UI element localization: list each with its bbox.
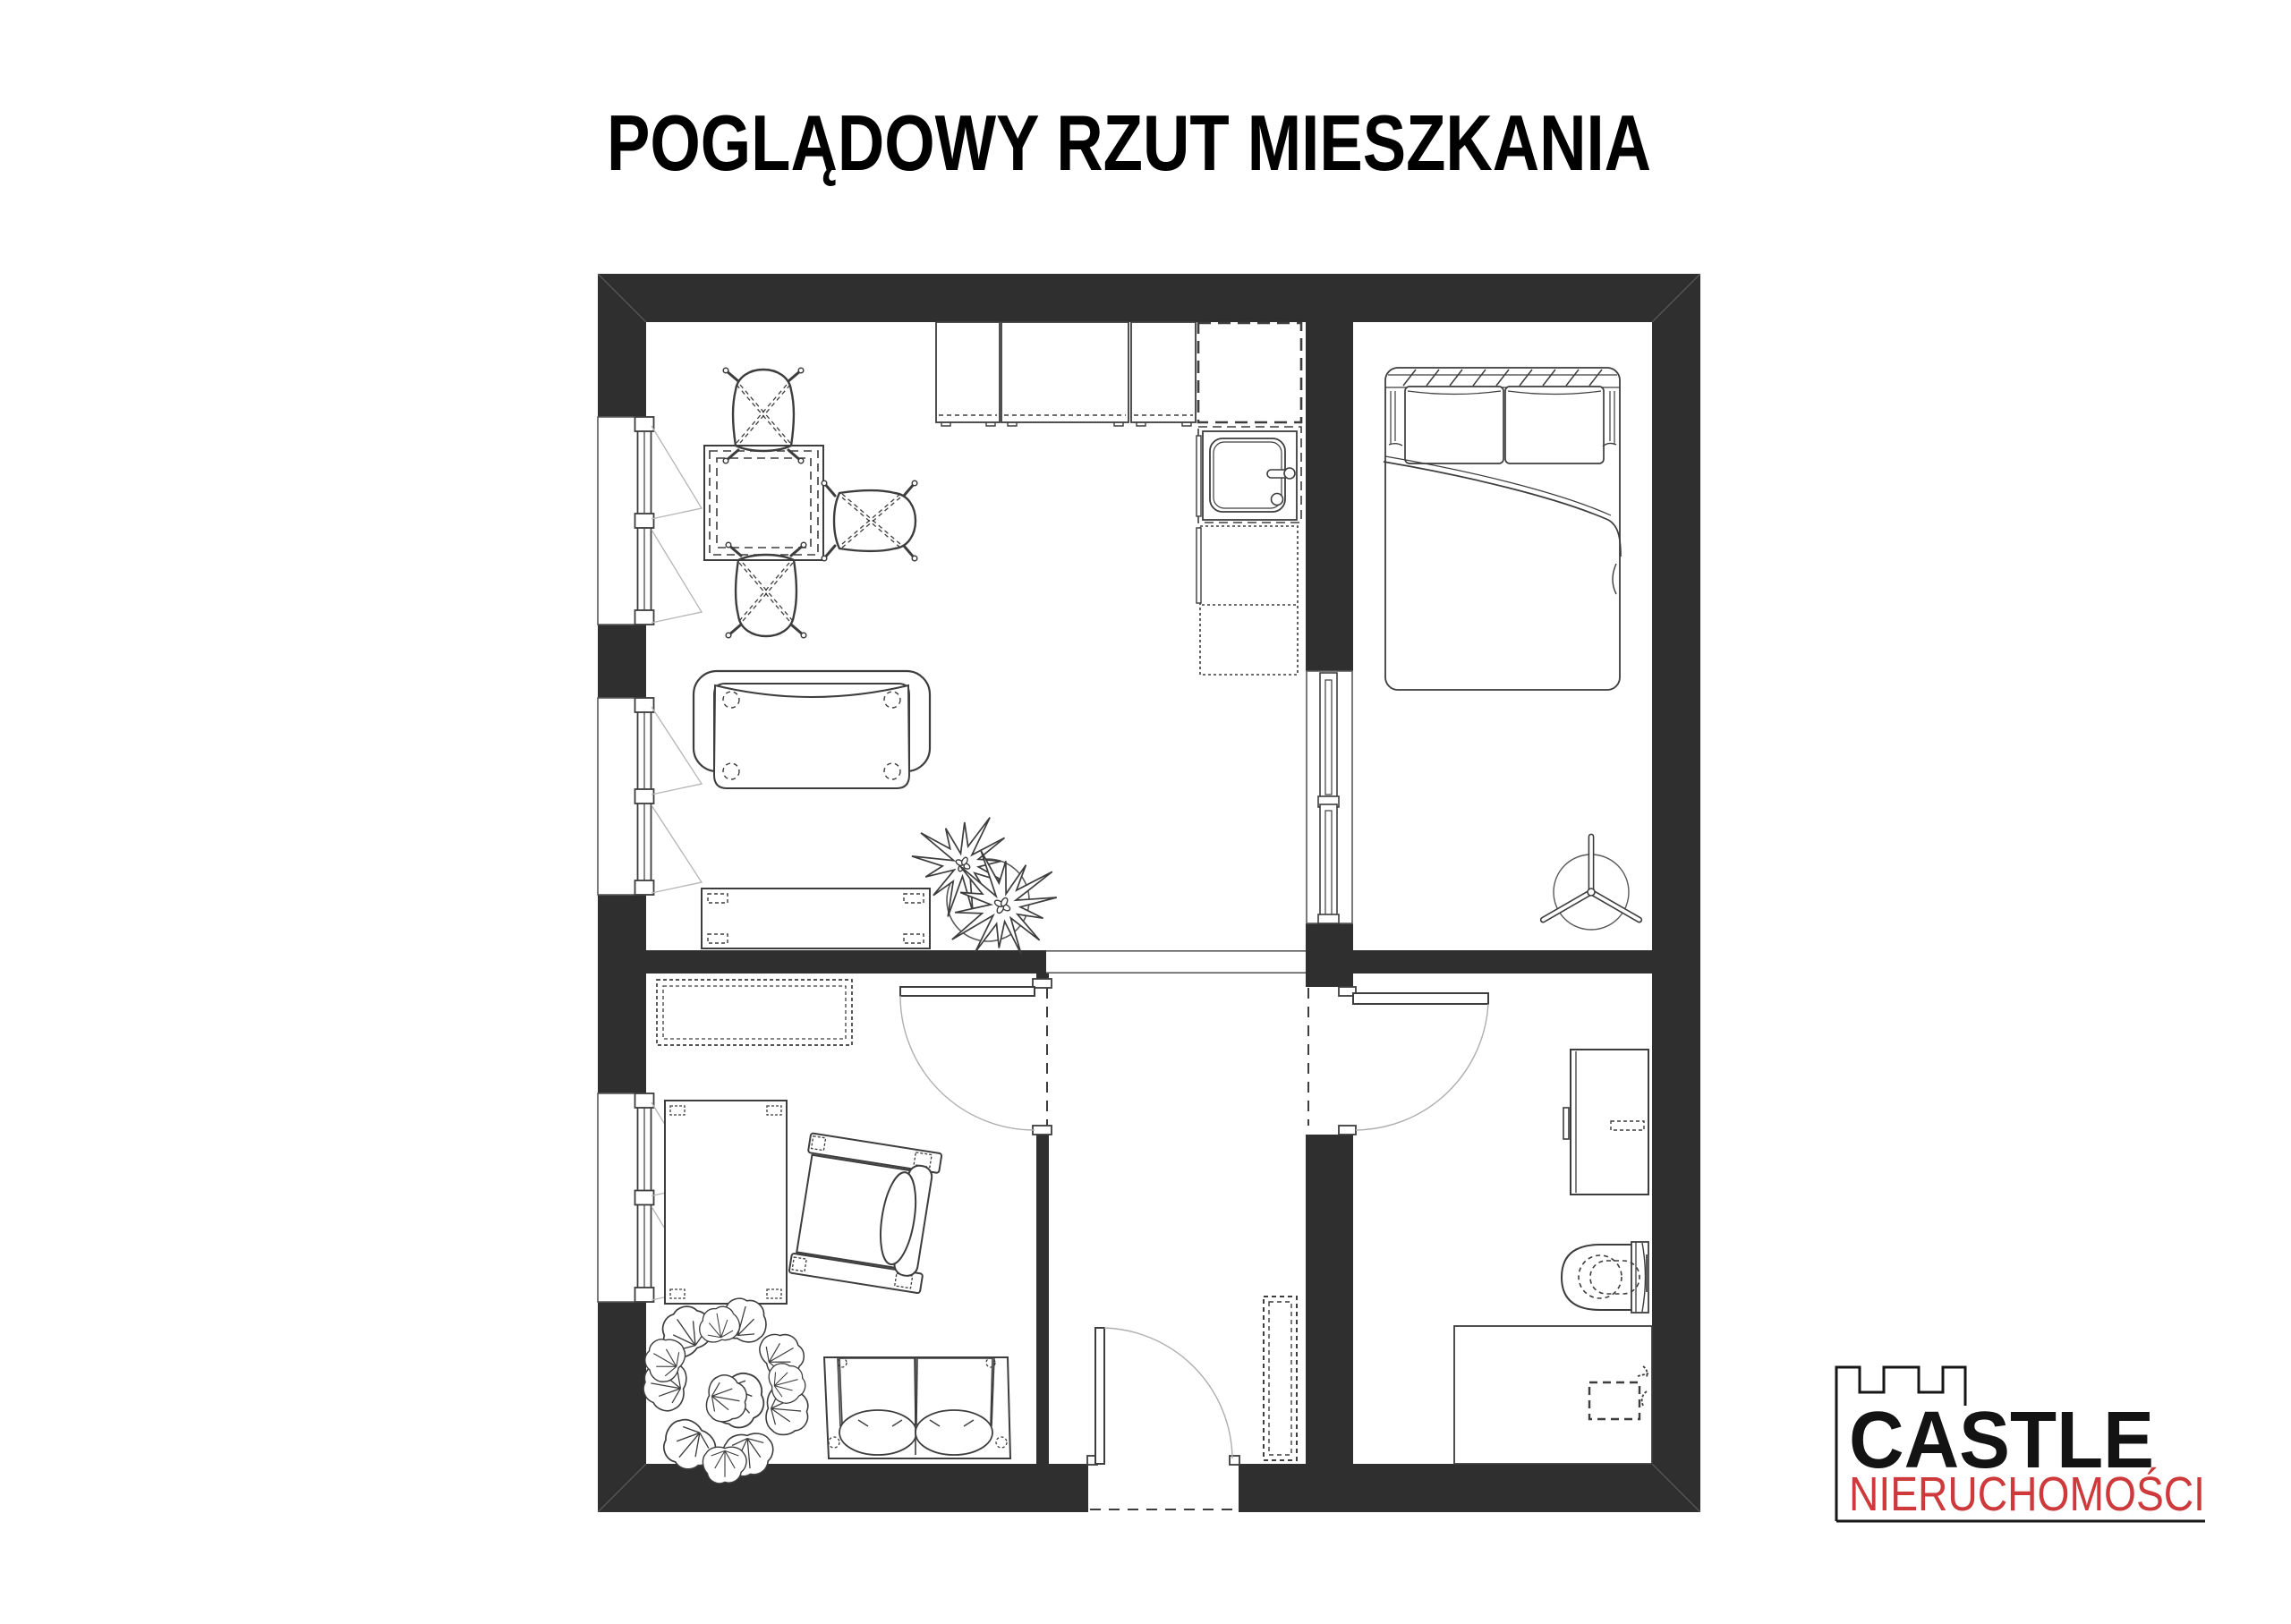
svg-text:NIERUCHOMOŚCI: NIERUCHOMOŚCI [1849, 1467, 2205, 1521]
svg-text:POGLĄDOWY RZUT MIESZKANIA: POGLĄDOWY RZUT MIESZKANIA [607, 98, 1651, 187]
